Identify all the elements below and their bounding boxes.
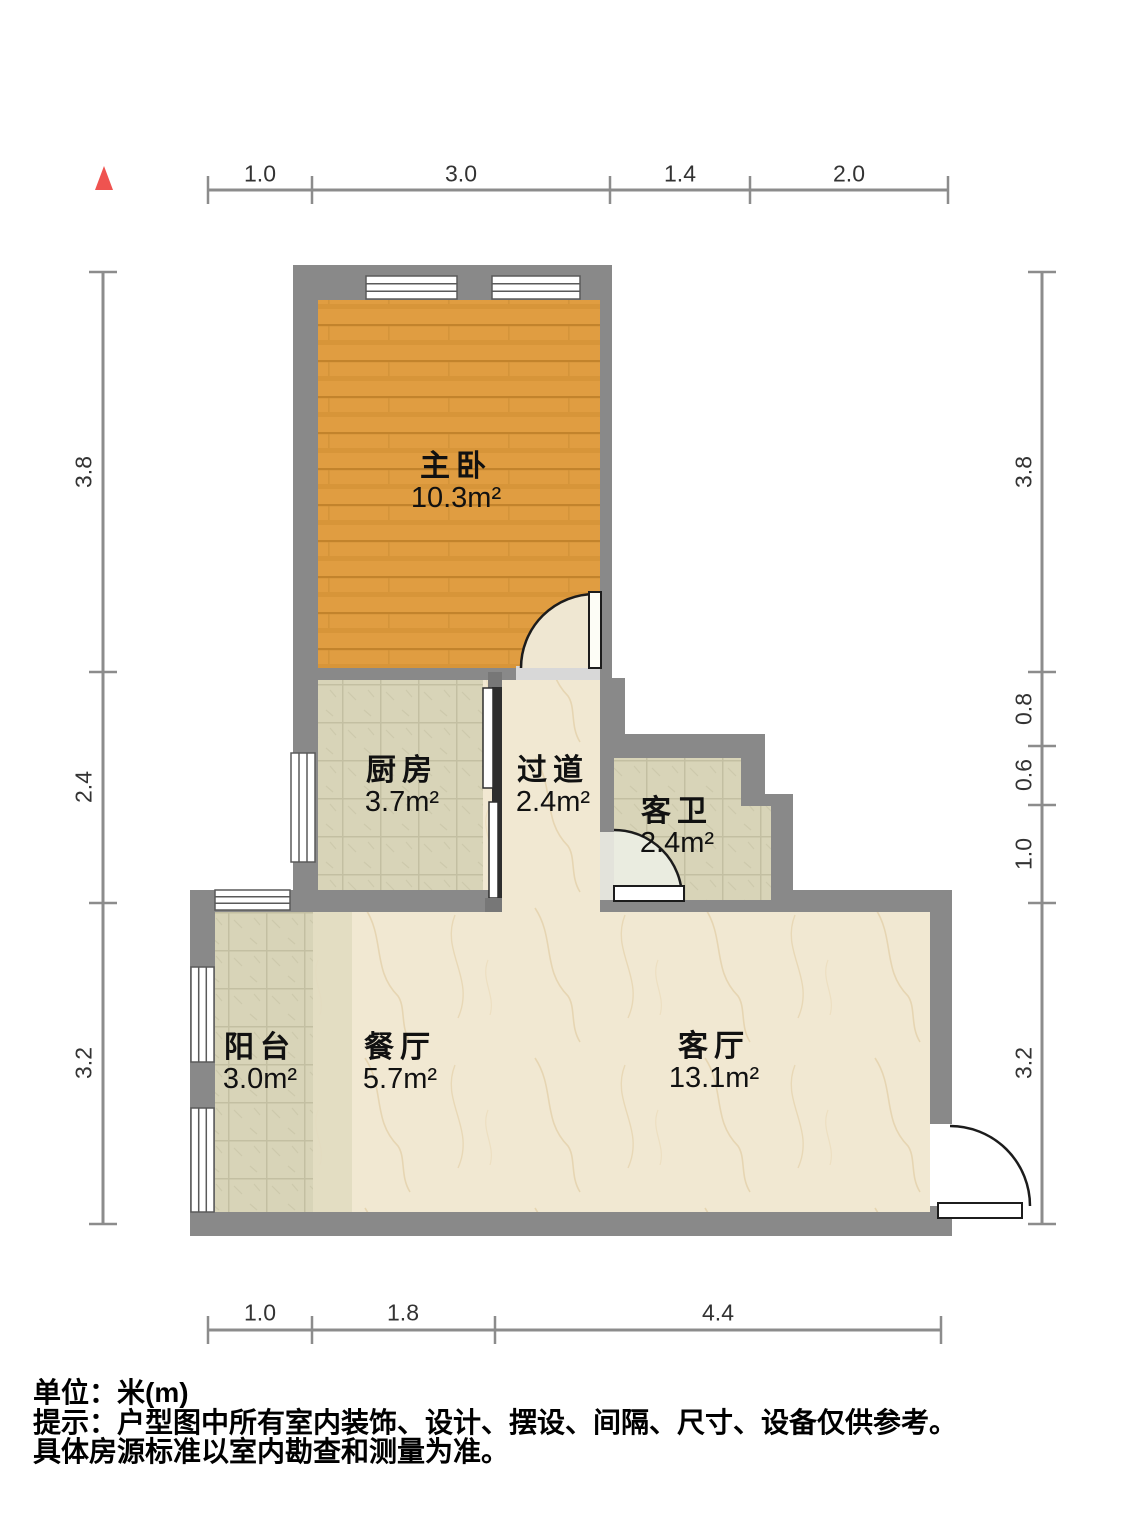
bedroom-window-left-icon	[366, 276, 457, 299]
dim-line-right	[1028, 272, 1056, 1224]
bedroom-door-threshold	[516, 666, 600, 680]
bathroom-door-threshold	[600, 832, 614, 900]
balcony-floor	[215, 912, 313, 1212]
unit-note: 单位：米(m)	[33, 1378, 957, 1408]
bedroom-south-wall	[318, 668, 516, 680]
bathroom-north-wall	[600, 734, 765, 758]
entry-opening	[930, 1124, 952, 1206]
floors	[215, 300, 930, 1212]
living-dining-floor	[313, 912, 930, 1212]
floor-plan-page: 主卧 10.3m² 厨房 3.7m² 过道 2.4m² 客卫 2.4m² 阳台 …	[0, 0, 1144, 1518]
bedroom-window-right-icon	[492, 276, 580, 299]
disclaimer-line-1: 提示：户型图中所有室内装饰、设计、摆设、间隔、尺寸、设备仅供参考。	[33, 1408, 957, 1438]
living-north-wall-right	[793, 890, 952, 912]
bathroom-west-wall	[600, 758, 614, 832]
floor-plan-drawing	[0, 0, 1144, 1518]
north-arrow-icon	[95, 166, 113, 190]
living-east-wall	[930, 890, 952, 1124]
dim-line-bottom	[208, 1316, 941, 1344]
kitchen-floor	[318, 678, 487, 890]
disclaimer-line-2: 具体房源标准以室内勘查和测量为准。	[33, 1437, 957, 1467]
footer-notes: 单位：米(m) 提示：户型图中所有室内装饰、设计、摆设、间隔、尺寸、设备仅供参考…	[33, 1378, 957, 1467]
entry-door	[938, 1126, 1030, 1218]
balcony-west-window-lower-icon	[191, 1108, 214, 1212]
bedroom-west-wall	[293, 300, 318, 678]
balcony-edge-strip	[313, 912, 352, 1212]
bathroom-east-wall	[771, 794, 793, 912]
south-wall	[190, 1212, 952, 1236]
dim-line-left	[89, 272, 117, 1224]
dim-line-top	[208, 176, 948, 204]
bathroom-northeast-wall	[741, 734, 765, 794]
kitchen-west-window-icon	[291, 753, 315, 862]
hallway-floor	[502, 678, 600, 912]
balcony-north-window-icon	[215, 890, 290, 910]
balcony-west-window-upper-icon	[191, 967, 214, 1062]
